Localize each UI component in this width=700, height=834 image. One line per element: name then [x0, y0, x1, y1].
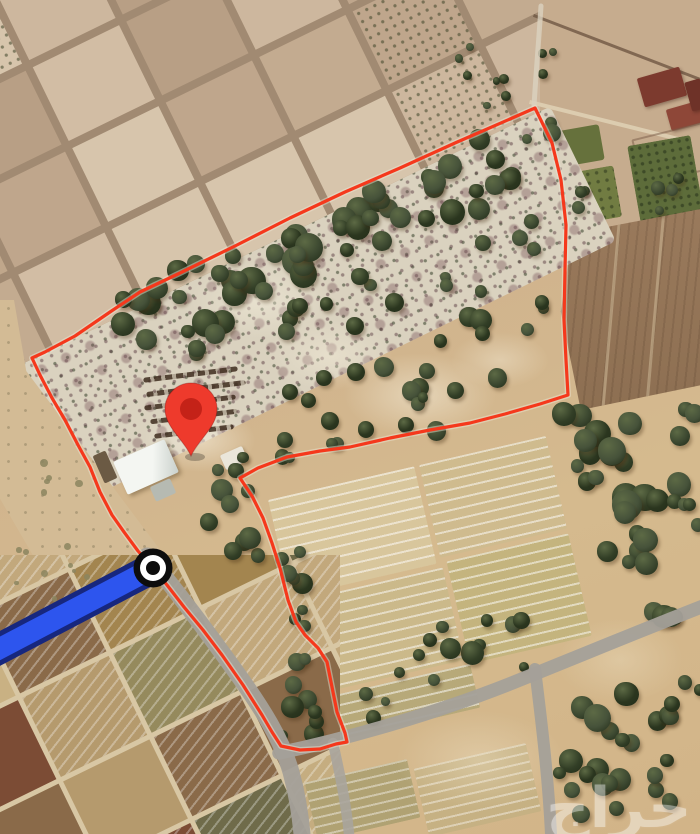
boundary-track [32, 108, 568, 750]
location-pin-icon[interactable] [165, 383, 217, 461]
watermark-text: حراج [546, 776, 692, 834]
route-line [0, 568, 153, 661]
map-overlays [0, 0, 700, 834]
road [534, 6, 541, 106]
parcel-boundary-line [32, 108, 568, 750]
route-endpoint-marker [146, 561, 160, 575]
road [147, 556, 302, 834]
map-canvas[interactable]: حراج [0, 0, 700, 834]
road [333, 743, 349, 834]
